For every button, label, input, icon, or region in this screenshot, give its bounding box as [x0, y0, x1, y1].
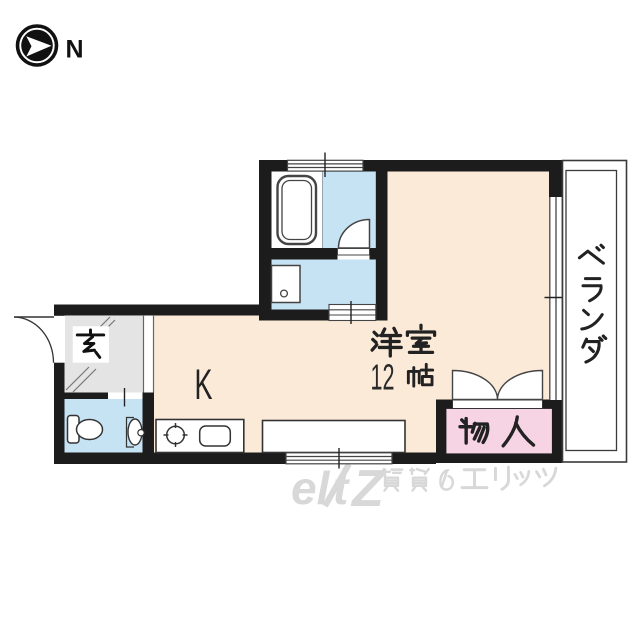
svg-text:12: 12 [371, 356, 395, 397]
svg-text:K: K [195, 362, 213, 409]
svg-text:el: el [291, 462, 331, 514]
svg-text:N: N [66, 36, 84, 64]
svg-text:Z: Z [350, 460, 386, 518]
